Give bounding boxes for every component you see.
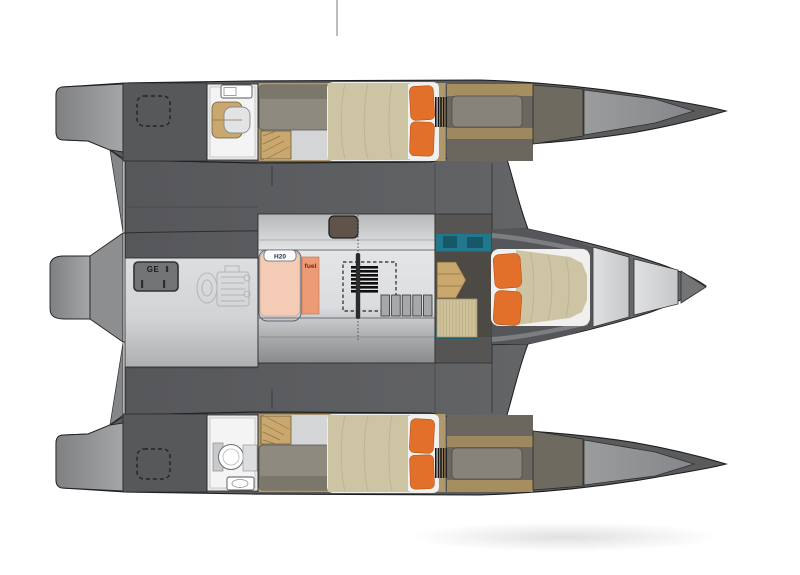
- seat-cushion-shade: [467, 237, 483, 248]
- starboard-bathroom: [207, 415, 258, 491]
- settee-backrest: [259, 85, 330, 99]
- aft-beam-fairing: [110, 343, 123, 425]
- master-pillow: [493, 290, 522, 326]
- bow-nose: [681, 271, 706, 303]
- stair-step: [351, 266, 378, 269]
- mast-post-bar: [356, 253, 360, 319]
- berth-pillow: [409, 455, 434, 490]
- generator-terminal: [166, 266, 168, 272]
- water-tank: H20: [259, 250, 301, 321]
- storage-chest: [261, 131, 291, 159]
- port-hull: [56, 80, 726, 163]
- stair-step: [351, 270, 378, 273]
- hull-shadow: [410, 522, 720, 552]
- lower-step: [392, 295, 401, 316]
- aft-beam-fairing: [110, 150, 123, 232]
- master-pillow: [493, 253, 522, 289]
- shelf-tan: [447, 84, 533, 96]
- port-bathroom: [207, 84, 258, 160]
- sink: [227, 477, 254, 490]
- bow-storage: [533, 431, 583, 490]
- starboard-hull: [56, 412, 726, 495]
- fuel-tank-label: fuel: [304, 263, 316, 270]
- generator-terminal: [163, 280, 165, 288]
- forward-berth-cushion: [452, 448, 522, 479]
- chest-body: [261, 416, 291, 444]
- trimaran-floor-plan: GE: [0, 0, 800, 575]
- berth-duvet: [328, 415, 410, 492]
- woven-mat: [437, 299, 477, 337]
- toilet-bowl: [219, 445, 244, 470]
- shelf-tan: [447, 436, 533, 447]
- lower-step: [381, 295, 390, 316]
- berth-pillow: [409, 418, 435, 453]
- generator-unit: GE: [134, 262, 178, 291]
- engine-room: GE: [125, 258, 258, 367]
- main-hull-stern-section: [90, 233, 123, 342]
- forward-berth-cushion: [452, 96, 522, 127]
- main-hull-bow: [593, 247, 706, 327]
- port-stern-cap: [56, 84, 123, 152]
- bow-deck-section: [634, 259, 678, 315]
- port-aft-deck: [123, 83, 207, 161]
- generator-terminal: [141, 280, 143, 288]
- main-hull-stern-cap: [50, 256, 90, 319]
- lower-step: [423, 295, 432, 316]
- bow-storage: [533, 85, 583, 144]
- stair-step: [351, 286, 378, 289]
- sink: [221, 85, 252, 98]
- water-tank-body: [260, 252, 300, 316]
- starboard-aft-deck: [123, 414, 207, 492]
- storage-chest: [261, 416, 291, 444]
- bow-deck-section: [593, 247, 629, 327]
- seat-cushion-shade: [443, 236, 457, 248]
- stair-step: [351, 282, 378, 285]
- settee-backrest: [259, 476, 330, 490]
- stair-step: [351, 278, 378, 281]
- stair-step: [351, 274, 378, 277]
- stair-step: [351, 290, 378, 293]
- cabin-entry-column: [435, 214, 492, 363]
- berth-pillow: [409, 85, 435, 120]
- fuel-tank: fuel: [302, 257, 319, 314]
- berth-duvet: [328, 83, 410, 160]
- shelf-tan: [447, 128, 533, 139]
- water-tank-label: H20: [274, 254, 286, 261]
- floor-plan-drawing: GE: [0, 0, 800, 575]
- generator-label: GE: [147, 265, 160, 274]
- shower-tray: [243, 445, 257, 471]
- berth-pillow: [409, 122, 434, 157]
- starboard-stern-cap: [56, 423, 123, 491]
- lower-step: [402, 295, 411, 316]
- corridor: H20 fuel: [258, 214, 435, 363]
- lower-step: [413, 295, 422, 316]
- saloon-hatch: [329, 216, 358, 238]
- shelf-tan: [447, 480, 533, 492]
- master-cabin: [491, 229, 592, 344]
